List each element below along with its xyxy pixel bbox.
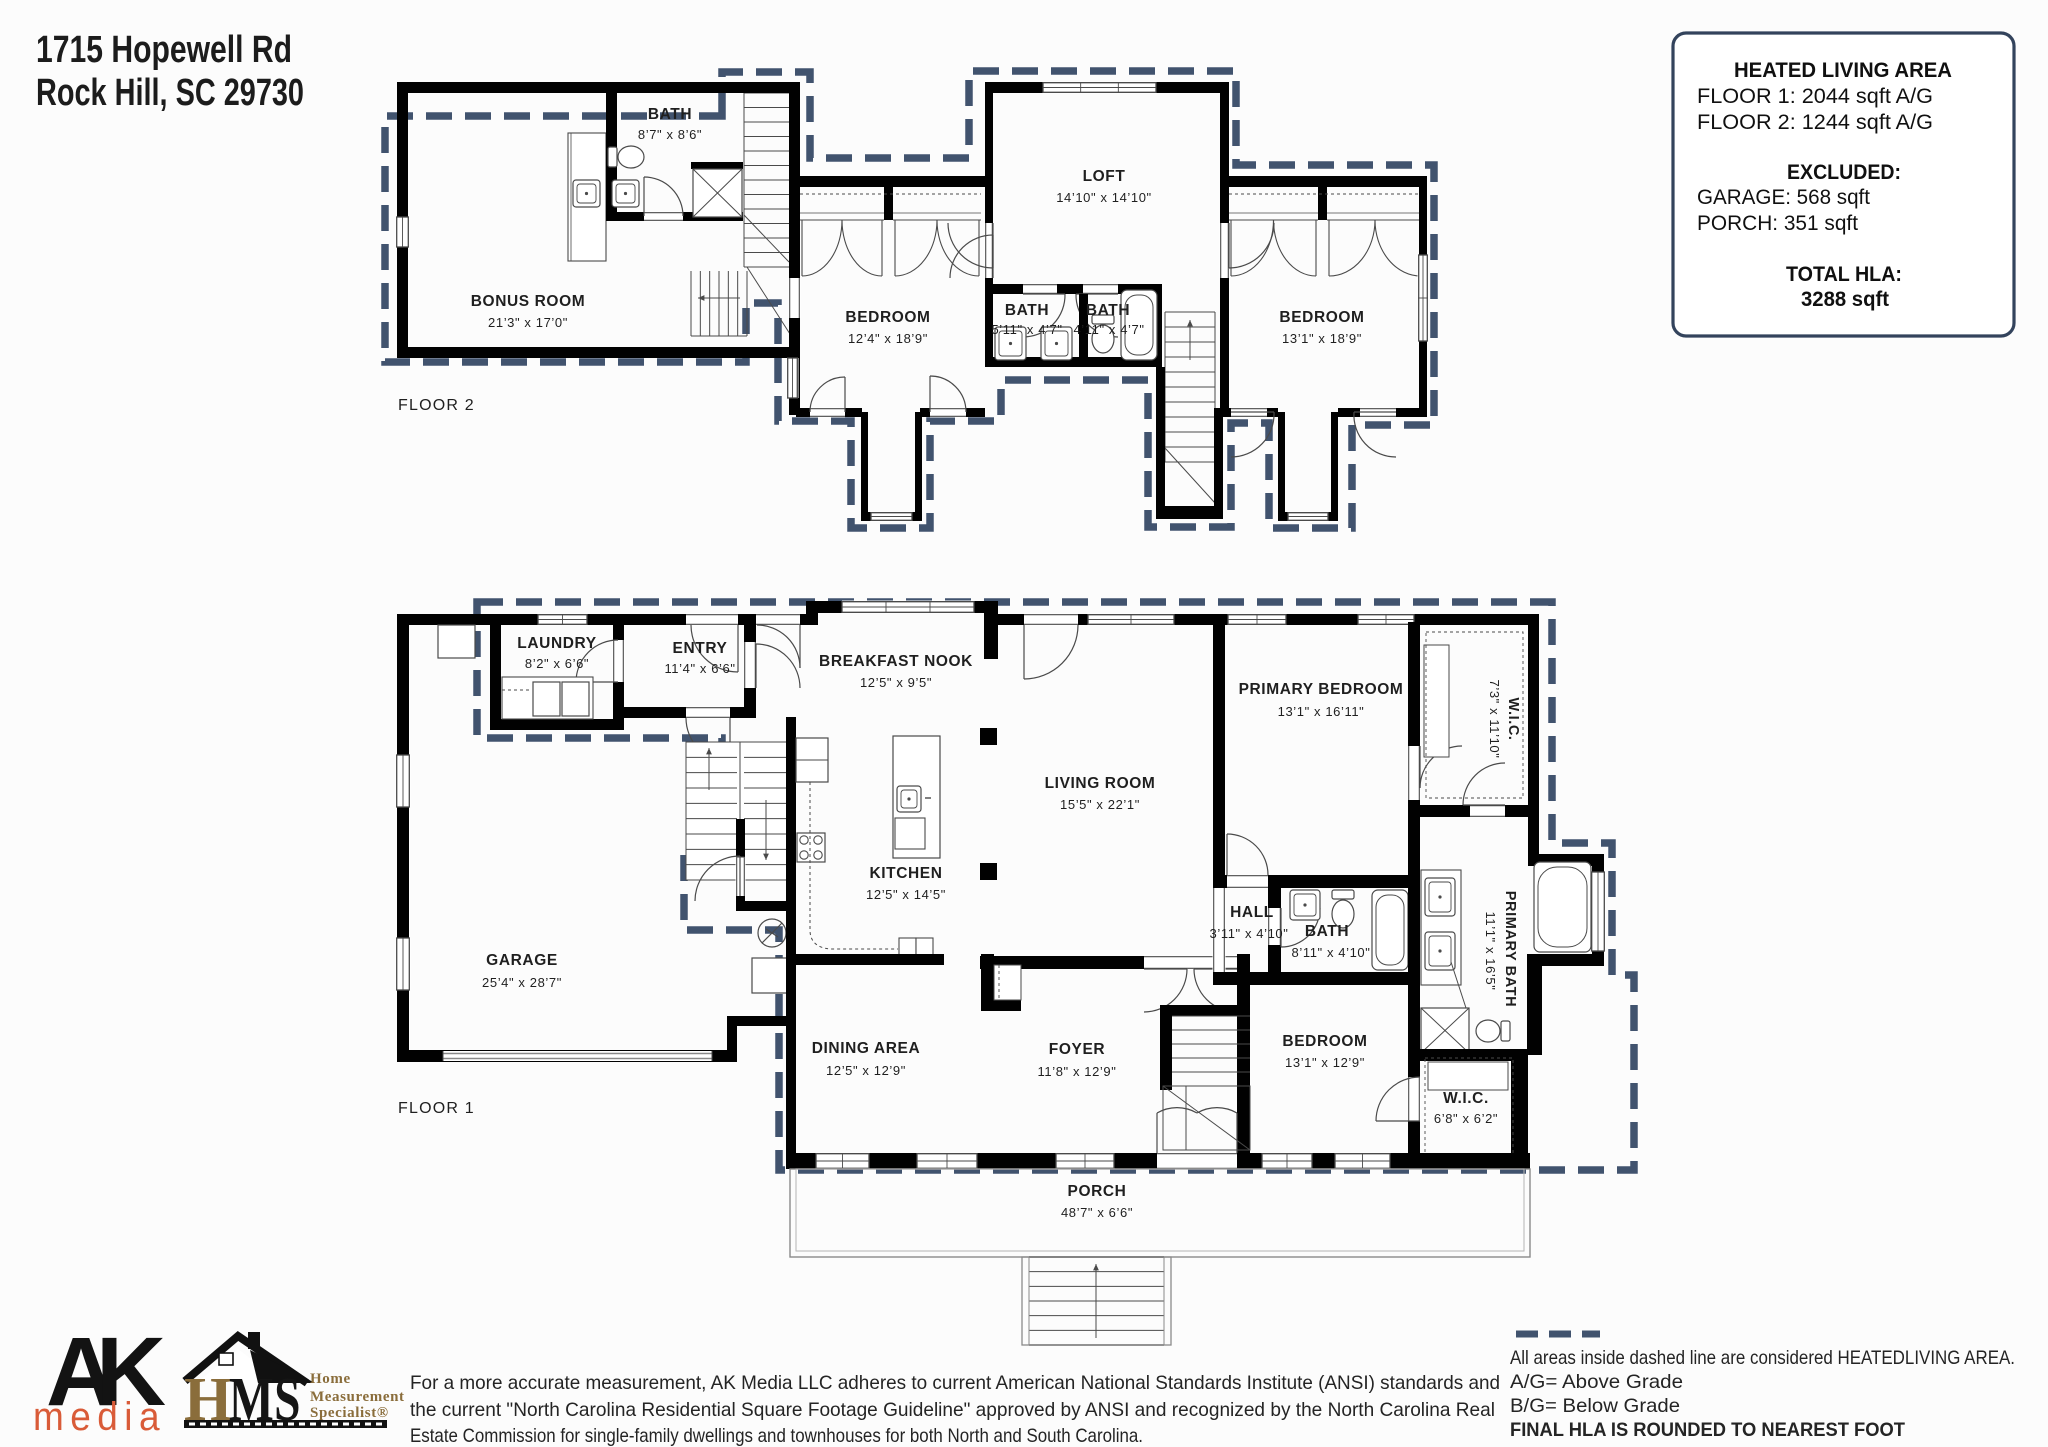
svg-text:B/G= Below Grade: B/G= Below Grade bbox=[1510, 1395, 1680, 1417]
svg-text:the current "North Carolina Re: the current "North Carolina Residential … bbox=[410, 1399, 1495, 1421]
svg-text:8’11" x 4’10": 8’11" x 4’10" bbox=[1292, 945, 1371, 960]
svg-text:BATH: BATH bbox=[648, 106, 692, 123]
svg-text:Estate Commission for single-f: Estate Commission for single-family dwel… bbox=[410, 1425, 1143, 1447]
svg-text:25’4" x 28’7": 25’4" x 28’7" bbox=[482, 975, 562, 990]
svg-text:Specialist®: Specialist® bbox=[310, 1405, 389, 1421]
svg-text:FOYER: FOYER bbox=[1049, 1041, 1105, 1058]
svg-text:FLOOR 2: FLOOR 2 bbox=[398, 397, 475, 414]
svg-text:FLOOR 1: 2044 sqft A/G: FLOOR 1: 2044 sqft A/G bbox=[1697, 85, 1933, 108]
svg-text:4’11" x 4’7": 4’11" x 4’7" bbox=[1073, 322, 1144, 337]
svg-text:GARAGE: 568 sqft: GARAGE: 568 sqft bbox=[1697, 186, 1870, 209]
svg-text:BREAKFAST NOOK: BREAKFAST NOOK bbox=[819, 653, 973, 670]
svg-text:Home: Home bbox=[310, 1371, 351, 1387]
svg-text:BEDROOM: BEDROOM bbox=[845, 309, 930, 326]
svg-text:BEDROOM: BEDROOM bbox=[1279, 309, 1364, 326]
svg-text:W.I.C.: W.I.C. bbox=[1443, 1090, 1489, 1107]
svg-text:1715 Hopewell Rd: 1715 Hopewell Rd bbox=[36, 29, 292, 71]
svg-text:TOTAL HLA:: TOTAL HLA: bbox=[1786, 263, 1902, 286]
svg-text:BEDROOM: BEDROOM bbox=[1282, 1033, 1367, 1050]
svg-text:13’1" x 18’9": 13’1" x 18’9" bbox=[1282, 331, 1362, 346]
svg-text:media: media bbox=[33, 1395, 166, 1439]
svg-text:12’5" x 14’5": 12’5" x 14’5" bbox=[866, 887, 946, 902]
svg-text:DINING AREA: DINING AREA bbox=[812, 1040, 921, 1057]
svg-text:HEATED LIVING AREA: HEATED LIVING AREA bbox=[1734, 59, 1952, 82]
svg-text:LAUNDRY: LAUNDRY bbox=[517, 635, 596, 652]
svg-text:Rock Hill, SC 29730: Rock Hill, SC 29730 bbox=[36, 72, 304, 114]
svg-text:7’3" x 11’10": 7’3" x 11’10" bbox=[1487, 680, 1502, 759]
svg-text:KITCHEN: KITCHEN bbox=[869, 865, 942, 882]
svg-text:EXCLUDED:: EXCLUDED: bbox=[1787, 161, 1901, 184]
svg-text:FLOOR 2: 1244 sqft A/G: FLOOR 2: 1244 sqft A/G bbox=[1697, 111, 1933, 134]
svg-text:PORCH: PORCH bbox=[1068, 1183, 1127, 1200]
svg-text:GARAGE: GARAGE bbox=[486, 952, 558, 969]
svg-text:21’3" x 17’0": 21’3" x 17’0" bbox=[488, 315, 568, 330]
svg-text:BATH: BATH bbox=[1005, 302, 1049, 319]
svg-text:PRIMARY BEDROOM: PRIMARY BEDROOM bbox=[1239, 681, 1404, 698]
svg-text:11’8" x 12’9": 11’8" x 12’9" bbox=[1038, 1064, 1117, 1079]
svg-text:PRIMARY BATH: PRIMARY BATH bbox=[1502, 891, 1518, 1008]
svg-text:12’5" x 12’9": 12’5" x 12’9" bbox=[826, 1063, 906, 1078]
svg-text:BATH: BATH bbox=[1305, 923, 1349, 940]
svg-text:For a more accurate measuremen: For a more accurate measurement, AK Medi… bbox=[410, 1372, 1500, 1394]
svg-text:All areas inside dashed line a: All areas inside dashed line are conside… bbox=[1510, 1347, 2015, 1369]
svg-text:13’1" x 12’9": 13’1" x 12’9" bbox=[1285, 1055, 1365, 1070]
svg-text:3288 sqft: 3288 sqft bbox=[1801, 288, 1889, 311]
svg-text:11’4" x 6’6": 11’4" x 6’6" bbox=[664, 661, 735, 676]
svg-text:13’1" x 16’11": 13’1" x 16’11" bbox=[1278, 704, 1365, 719]
svg-text:BATH: BATH bbox=[1086, 302, 1130, 319]
svg-text:8’7" x 8’6": 8’7" x 8’6" bbox=[638, 127, 702, 142]
svg-text:12’5" x 9’5": 12’5" x 9’5" bbox=[860, 675, 932, 690]
svg-text:FINAL HLA IS ROUNDED TO NEARES: FINAL HLA IS ROUNDED TO NEAREST FOOT bbox=[1510, 1419, 1905, 1441]
svg-text:8’2" x 6’6": 8’2" x 6’6" bbox=[525, 656, 589, 671]
svg-text:ENTRY: ENTRY bbox=[673, 640, 728, 657]
svg-text:LOFT: LOFT bbox=[1083, 168, 1126, 185]
svg-text:W.I.C.: W.I.C. bbox=[1505, 697, 1521, 740]
svg-text:5’11" x 4’7": 5’11" x 4’7" bbox=[991, 322, 1062, 337]
svg-text:48’7" x 6’6": 48’7" x 6’6" bbox=[1061, 1205, 1133, 1220]
svg-text:12’4" x 18’9": 12’4" x 18’9" bbox=[848, 331, 928, 346]
svg-text:LIVING ROOM: LIVING ROOM bbox=[1045, 775, 1156, 792]
svg-text:3’11" x 4’10": 3’11" x 4’10" bbox=[1210, 926, 1289, 941]
svg-text:6’8" x 6’2": 6’8" x 6’2" bbox=[1434, 1111, 1498, 1126]
svg-text:FLOOR 1: FLOOR 1 bbox=[398, 1100, 475, 1117]
svg-text:HALL: HALL bbox=[1230, 904, 1274, 921]
svg-text:A/G= Above Grade: A/G= Above Grade bbox=[1510, 1371, 1683, 1393]
svg-text:Measurement: Measurement bbox=[310, 1389, 405, 1405]
svg-text:14’10" x 14’10": 14’10" x 14’10" bbox=[1056, 190, 1152, 205]
svg-text:15’5" x 22’1": 15’5" x 22’1" bbox=[1060, 797, 1140, 812]
svg-text:PORCH: 351 sqft: PORCH: 351 sqft bbox=[1697, 212, 1858, 235]
svg-text:BONUS ROOM: BONUS ROOM bbox=[471, 293, 586, 310]
svg-text:11’1" x 16’5": 11’1" x 16’5" bbox=[1483, 912, 1498, 991]
